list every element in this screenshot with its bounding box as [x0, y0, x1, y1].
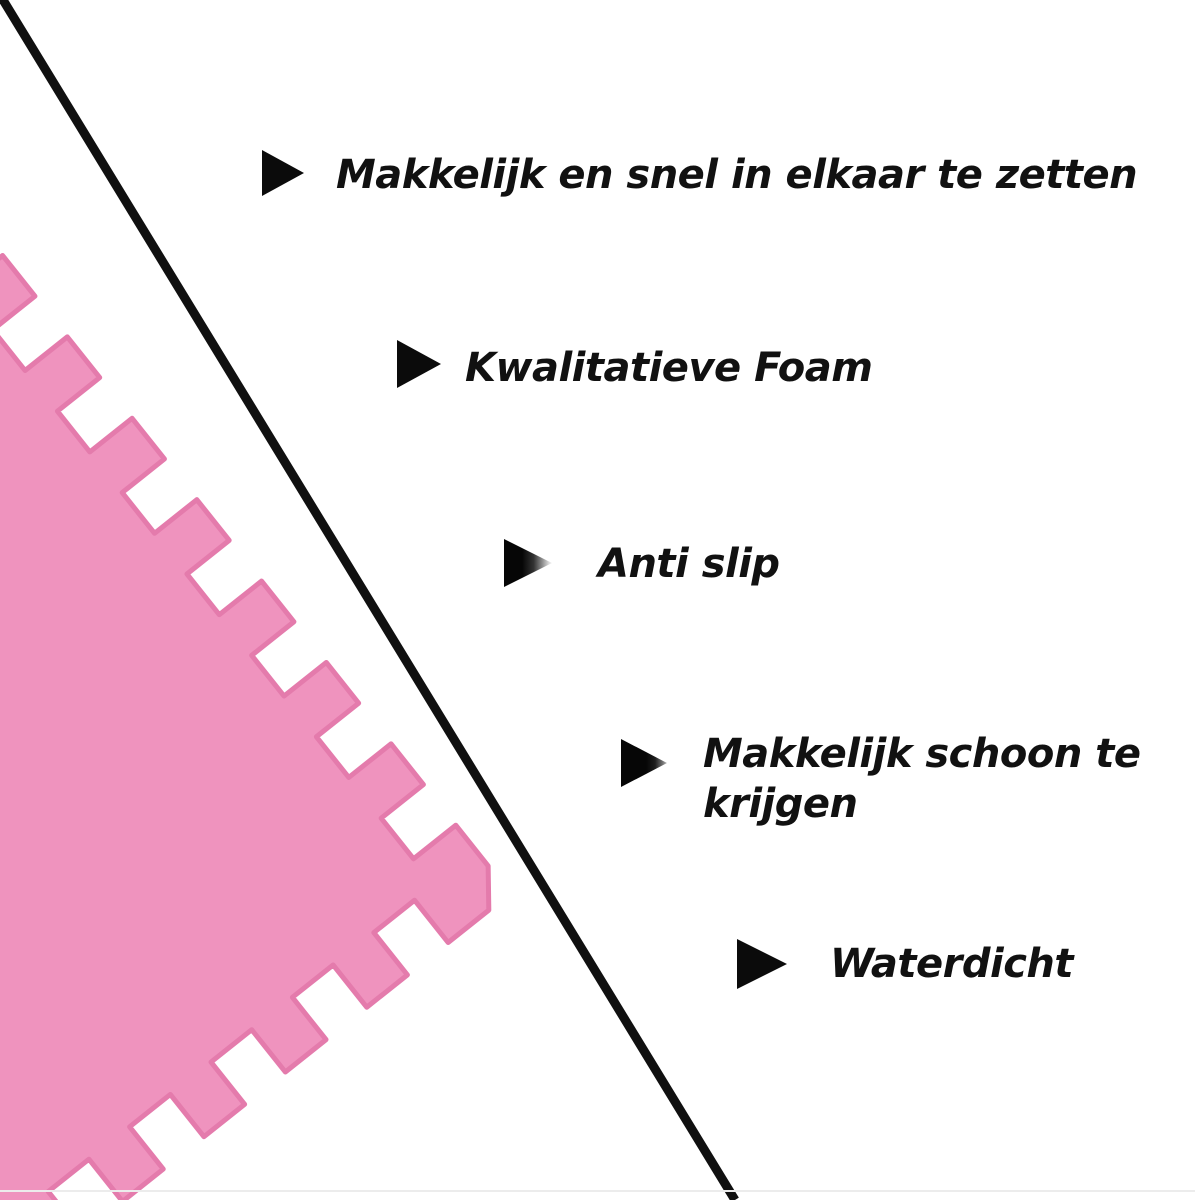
feature-label: Anti slip: [598, 539, 780, 589]
product-feature-image: Makkelijk en snel in elkaar te zetten Kw…: [0, 0, 1195, 1200]
feature-label: Makkelijk schoon te krijgen: [703, 729, 1195, 829]
feature-label: Kwalitatieve Foam: [465, 343, 872, 393]
bottom-hairline: [0, 1190, 1195, 1192]
feature-label: Makkelijk en snel in elkaar te zetten: [336, 150, 1137, 200]
feature-label: Waterdicht: [830, 939, 1073, 989]
